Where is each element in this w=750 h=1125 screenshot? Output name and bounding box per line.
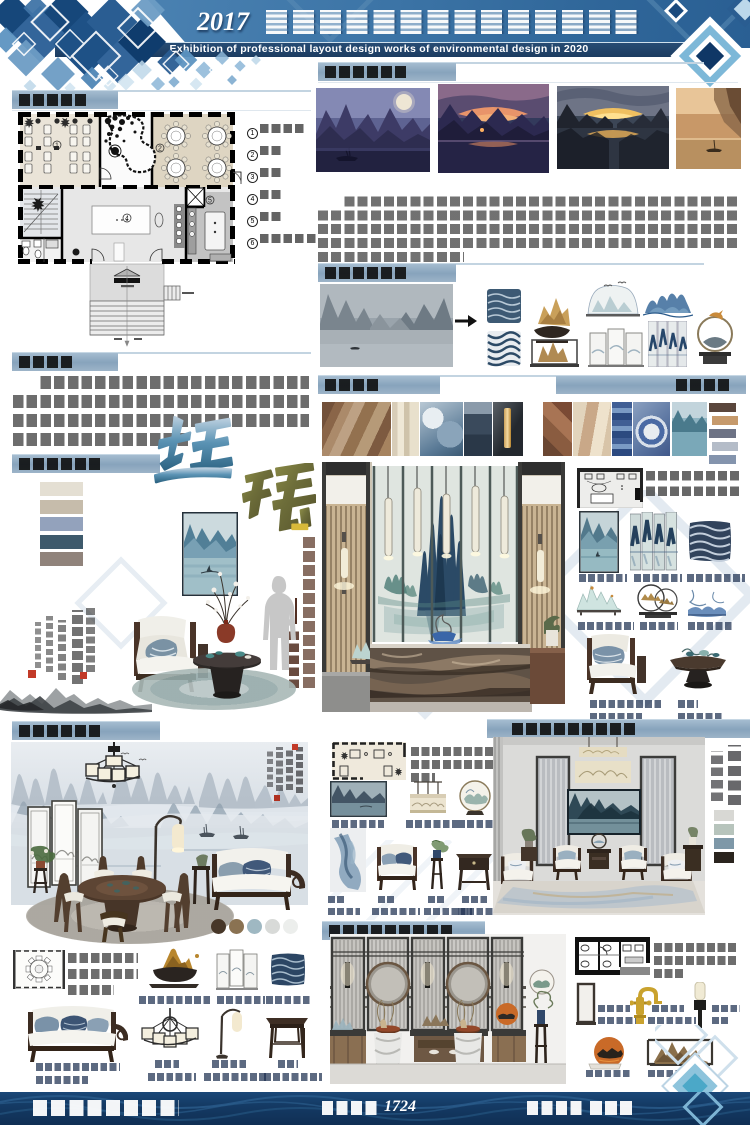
svg-text:5: 5 — [208, 198, 212, 205]
svg-text:1: 1 — [55, 143, 59, 150]
svg-text:2: 2 — [158, 146, 162, 153]
svg-text:4: 4 — [125, 216, 129, 223]
